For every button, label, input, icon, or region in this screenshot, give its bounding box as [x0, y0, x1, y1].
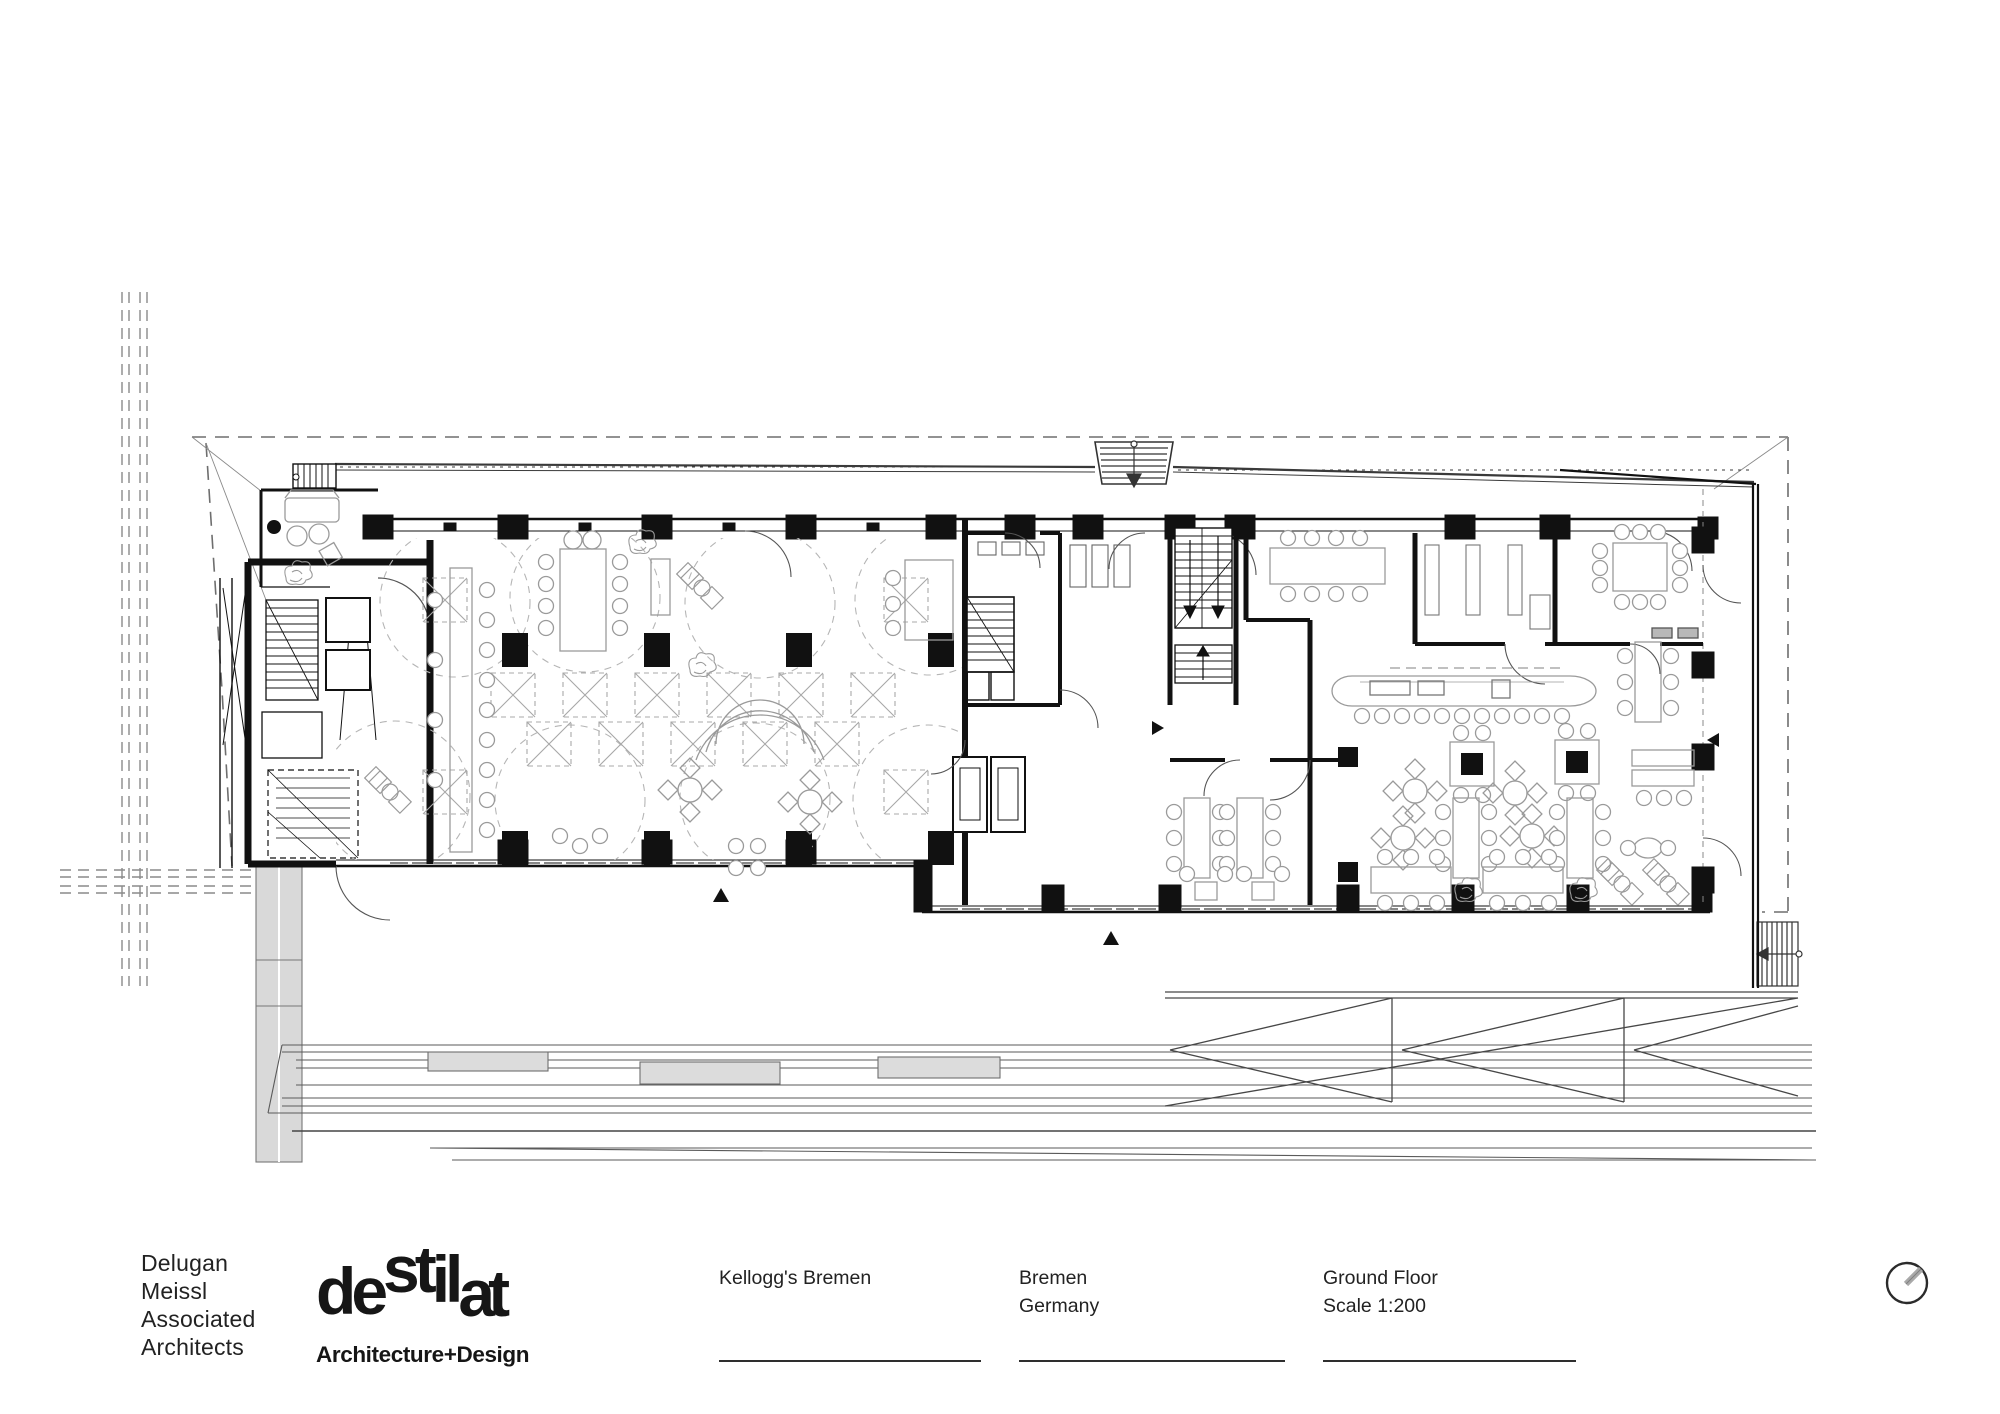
left-wing	[267, 490, 1005, 876]
project-name: Kellogg's Bremen	[719, 1264, 871, 1292]
central-core	[931, 520, 1703, 905]
location-country: Germany	[1019, 1292, 1099, 1320]
architect-line: Architects	[141, 1333, 256, 1361]
architect-name-block: Delugan Meissl Associated Architects	[141, 1249, 256, 1361]
columns	[502, 633, 954, 865]
circular-rooms	[320, 522, 1005, 875]
exterior-stair-east-icon	[1757, 922, 1802, 986]
destilat-logo: destilat	[316, 1238, 576, 1324]
drawing-info: Ground Floor Scale 1:200	[1323, 1264, 1438, 1320]
architect-line: Delugan	[141, 1249, 256, 1277]
meeting-room	[1593, 525, 1699, 639]
staff-table	[1270, 531, 1385, 602]
canteen	[1167, 642, 1695, 911]
drawing-scale: Scale 1:200	[1323, 1292, 1438, 1320]
drawing-sheet: Delugan Meissl Associated Architects des…	[0, 0, 2000, 1414]
title-underline	[1323, 1360, 1576, 1362]
location-city: Bremen	[1019, 1264, 1099, 1292]
floor-plan-drawing	[0, 0, 2000, 1414]
stair-core-west	[220, 540, 430, 868]
title-underline	[719, 1360, 981, 1362]
entry-stair-north-icon	[1095, 441, 1173, 487]
studio-logo-block: destilat Architecture+Design	[316, 1238, 576, 1368]
terrace-ramp	[1165, 992, 1798, 1106]
drawing-floor: Ground Floor	[1323, 1264, 1438, 1292]
architect-line: Associated	[141, 1305, 256, 1333]
architect-line: Meissl	[141, 1277, 256, 1305]
north-balcony	[335, 464, 1754, 487]
project-location: Bremen Germany	[1019, 1264, 1099, 1320]
north-indicator-icon	[1884, 1260, 1932, 1308]
studio-tagline: Architecture+Design	[316, 1342, 576, 1368]
title-underline	[1019, 1360, 1285, 1362]
